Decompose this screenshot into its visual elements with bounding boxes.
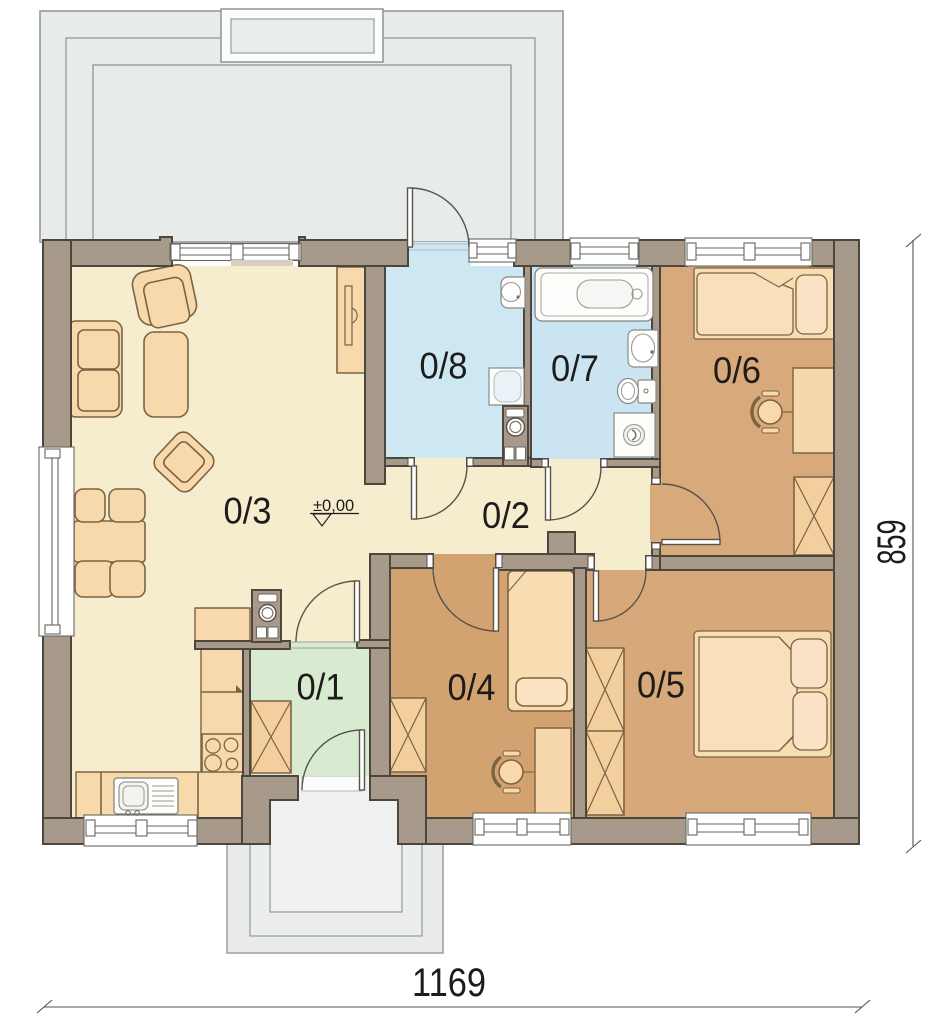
svg-text:859: 859 xyxy=(870,520,914,565)
svg-text:±0,00: ±0,00 xyxy=(313,497,354,515)
svg-text:0/7: 0/7 xyxy=(551,347,599,389)
svg-text:0/6: 0/6 xyxy=(713,349,761,391)
svg-text:0/5: 0/5 xyxy=(637,664,685,706)
svg-text:1169: 1169 xyxy=(412,961,486,1005)
svg-text:0/8: 0/8 xyxy=(420,345,468,387)
svg-text:0/4: 0/4 xyxy=(448,666,496,708)
svg-text:0/3: 0/3 xyxy=(224,490,272,532)
svg-text:0/2: 0/2 xyxy=(482,494,530,536)
svg-text:0/1: 0/1 xyxy=(297,666,345,708)
